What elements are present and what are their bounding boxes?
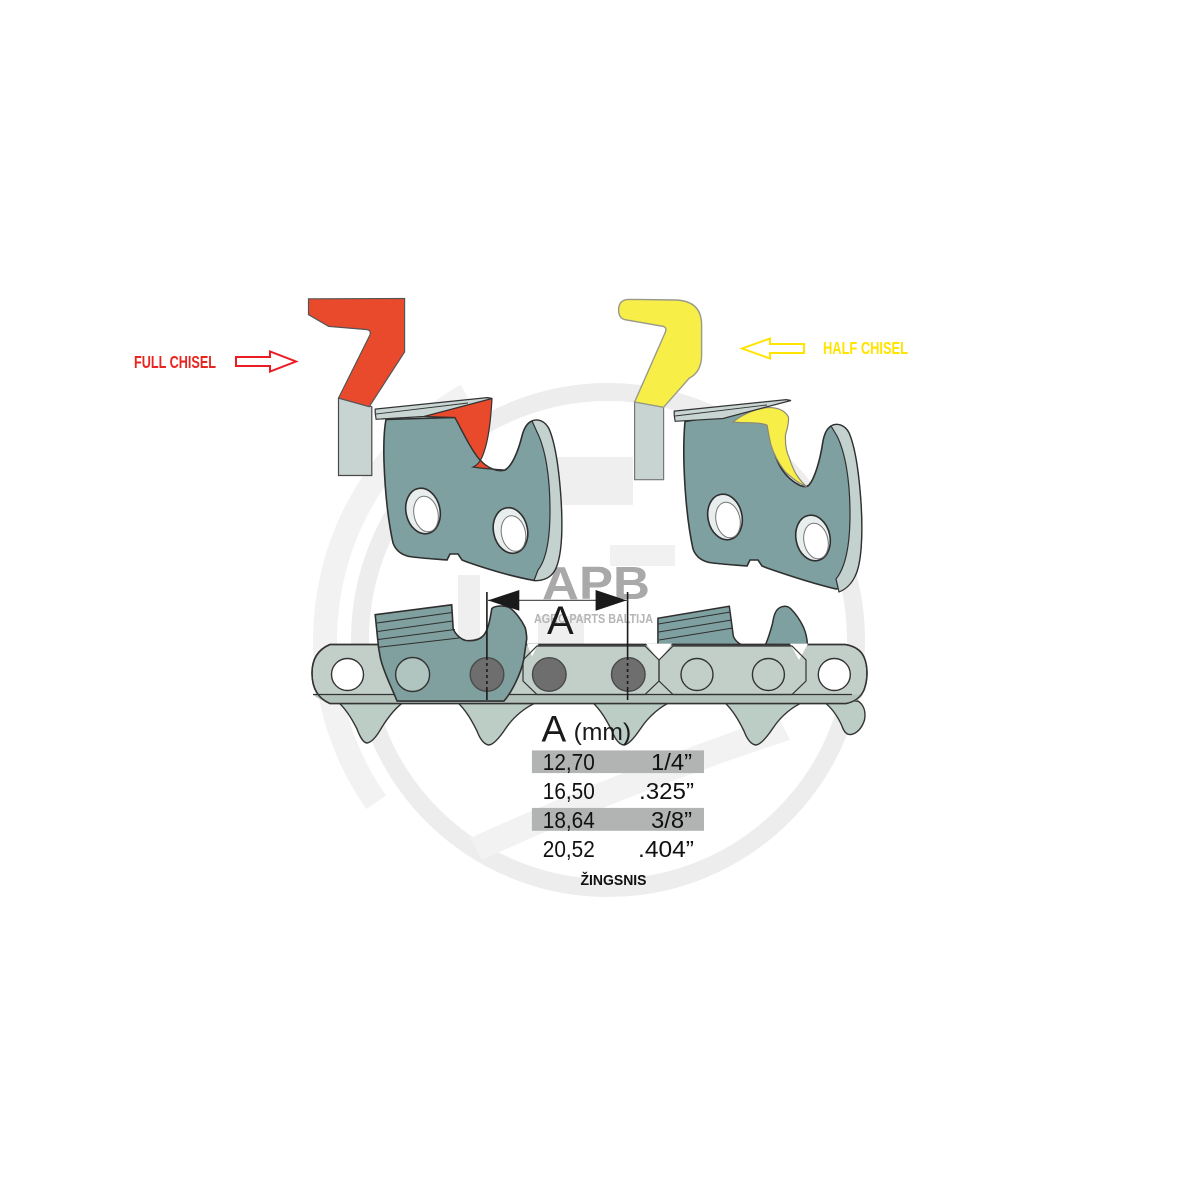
svg-text:HALF CHISEL: HALF CHISEL xyxy=(823,338,908,358)
svg-text:12,70: 12,70 xyxy=(543,749,595,775)
svg-text:FULL CHISEL: FULL CHISEL xyxy=(134,352,216,372)
svg-text:18,64: 18,64 xyxy=(543,807,595,833)
svg-text:.325”: .325” xyxy=(639,778,694,804)
svg-text:ŽINGSNIS: ŽINGSNIS xyxy=(581,871,647,889)
svg-text:16,50: 16,50 xyxy=(543,778,595,804)
svg-text:.404”: .404” xyxy=(638,836,694,862)
svg-text:1/4”: 1/4” xyxy=(651,749,692,775)
svg-text:A: A xyxy=(547,599,574,643)
svg-text:20,52: 20,52 xyxy=(543,836,595,862)
svg-text:3/8”: 3/8” xyxy=(651,807,692,833)
svg-text:(mm): (mm) xyxy=(574,719,632,746)
svg-text:A: A xyxy=(542,709,567,750)
